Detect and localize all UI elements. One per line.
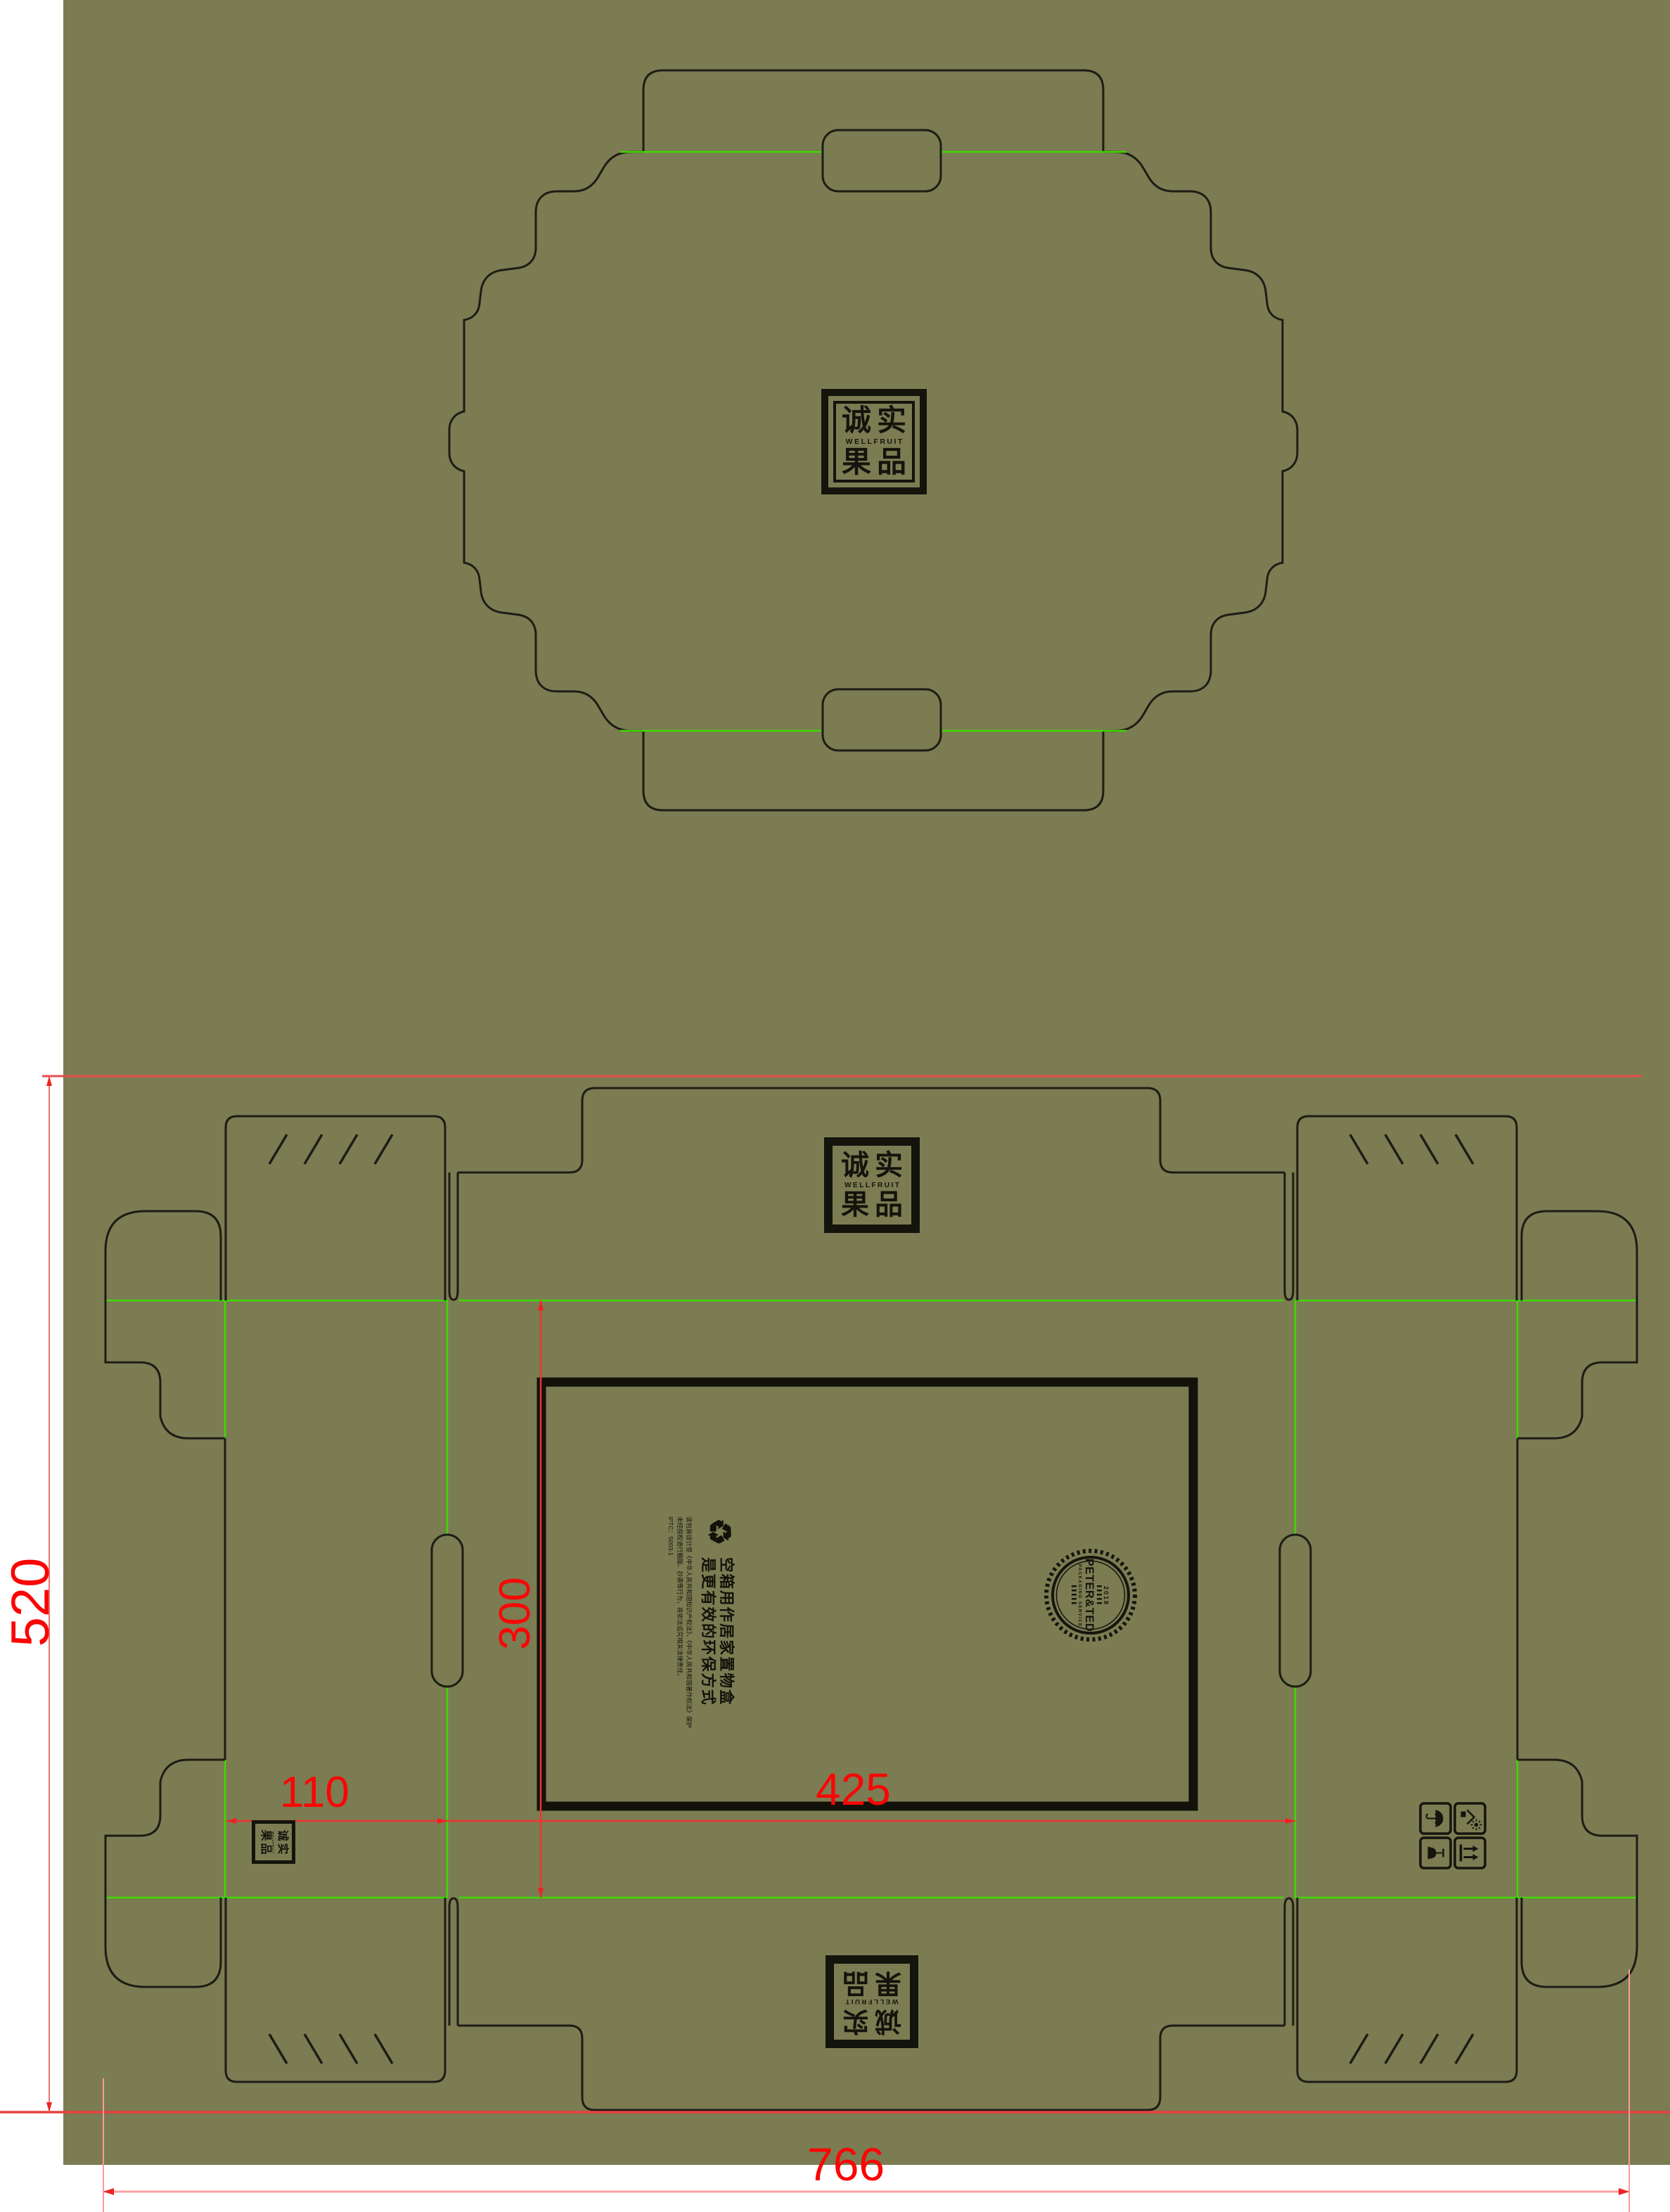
end-tab-bottom-left-cut	[105, 1760, 225, 1898]
stamp-bars-bottom	[1072, 1585, 1077, 1605]
end-tab-bottom-right-cut	[1517, 1760, 1637, 1898]
lid-bottom-flap-cut	[643, 731, 1103, 810]
slit-bottom-right	[1285, 1898, 1293, 2026]
brand-logo-side-small: 诚实 WELLFRUIT 果品	[252, 1820, 295, 1864]
legal-text: 该包装设计受《中华人民共和国知识产权法》、《中华人民共和国著作权法》保护 未经授…	[665, 1516, 693, 1802]
lid-top-flap-cut	[643, 70, 1103, 152]
brand-cn-bottom: 果品	[259, 1827, 271, 1856]
lid-left-profile-cut	[449, 152, 643, 731]
handle-slot-left	[432, 1535, 463, 1687]
brand-logo-top-flap: 诚实 WELLFRUIT 果品	[824, 1137, 920, 1233]
brand-cn-top: 诚实	[276, 1827, 288, 1856]
dimension-label-766: 766	[807, 2141, 885, 2187]
stamp-bars-top	[1098, 1585, 1103, 1605]
brand-en: WELLFRUIT	[272, 1830, 276, 1855]
legal-line2: 未经授权进行翻版、抄袭等行为，将依法追究相关法律责任。	[675, 1516, 684, 1802]
brand-cn-bottom: 果品	[837, 1969, 907, 1997]
dimension-label-110: 110	[280, 1771, 349, 1815]
stamp-year: 2018	[1103, 1585, 1110, 1606]
brand-en: WELLFRUIT	[843, 1182, 901, 1189]
hatch-bottom-left	[269, 2034, 392, 2064]
brand-logo-inner-frame: 诚实 WELLFRUIT 果品	[833, 401, 915, 482]
slit-top-left	[449, 1172, 458, 1300]
hatch-top-left	[269, 1134, 392, 1164]
dieline-drawing	[0, 0, 1670, 2212]
iptc-code: IPTC：S003-1	[665, 1516, 674, 1802]
brand-en: WELLFRUIT	[844, 1998, 900, 2006]
brand-logo-lid: 诚实 WELLFRUIT 果品	[821, 389, 927, 494]
dust-flap-bottom-left-cut	[105, 1898, 221, 1987]
fragile-icon	[1428, 1847, 1444, 1860]
brand-cn-bottom: 果品	[836, 447, 912, 478]
stamp-subtitle: PACKAGING SERVICE	[1078, 1563, 1082, 1627]
eco-headline-line2: 是更有效的环保方式	[698, 1557, 717, 1802]
hatched-flap-top-left-cut	[226, 1116, 445, 1300]
hatch-top-right	[1350, 1134, 1473, 1164]
keep-dry-icon	[1427, 1810, 1444, 1827]
dimension-label-425: 425	[816, 1767, 891, 1812]
stamp-name: PETER&TED	[1083, 1559, 1096, 1632]
handle-slot-right	[1280, 1535, 1311, 1687]
hatched-flap-bottom-right-cut	[1297, 1898, 1517, 2082]
keep-away-sunlight-icon	[1461, 1810, 1482, 1831]
dimension-label-520: 520	[4, 1518, 49, 1687]
packaging-stamp: 2018 PETER&TED PACKAGING SERVICE	[1052, 1556, 1129, 1634]
hatched-flap-top-right-cut	[1297, 1116, 1517, 1300]
eco-headline-line1: 空箱用作居家置物盒	[717, 1557, 735, 1802]
lid-top-tab-cut	[823, 130, 941, 191]
lid-right-profile-cut	[1103, 152, 1297, 731]
brand-cn-top: 诚实	[837, 2007, 907, 2035]
dust-flap-top-left-cut	[105, 1211, 221, 1300]
brand-cn-bottom: 果品	[835, 1191, 908, 1220]
dimension-label-300: 300	[494, 1553, 536, 1674]
hatched-flap-bottom-left-cut	[226, 1898, 445, 2082]
brand-logo-bottom-flap-rotated: 诚实 WELLFRUIT 果品	[826, 1955, 918, 2048]
slit-bottom-left	[449, 1898, 458, 2026]
recycle-icon: ♻	[703, 1518, 734, 1547]
brand-cn-top: 诚实	[836, 406, 912, 436]
legal-line1: 该包装设计受《中华人民共和国知识产权法》、《中华人民共和国著作权法》保护	[684, 1516, 693, 1802]
hatch-bottom-right	[1350, 2034, 1473, 2064]
dust-flap-top-right-cut	[1522, 1211, 1637, 1300]
brand-cn-top: 诚实	[835, 1151, 908, 1180]
end-tab-top-left-cut	[105, 1300, 225, 1438]
dust-flap-bottom-right-cut	[1522, 1898, 1637, 1987]
slit-top-right	[1285, 1172, 1293, 1300]
this-side-up-icon	[1461, 1845, 1479, 1862]
eco-print-block: ♻ 空箱用作居家置物盒 是更有效的环保方式 该包装设计受《中华人民共和国知识产权…	[662, 1516, 735, 1802]
end-tab-top-right-cut	[1517, 1300, 1637, 1438]
eco-headline: ♻ 空箱用作居家置物盒 是更有效的环保方式	[698, 1516, 735, 1802]
lid-bottom-tab-cut	[823, 689, 941, 750]
